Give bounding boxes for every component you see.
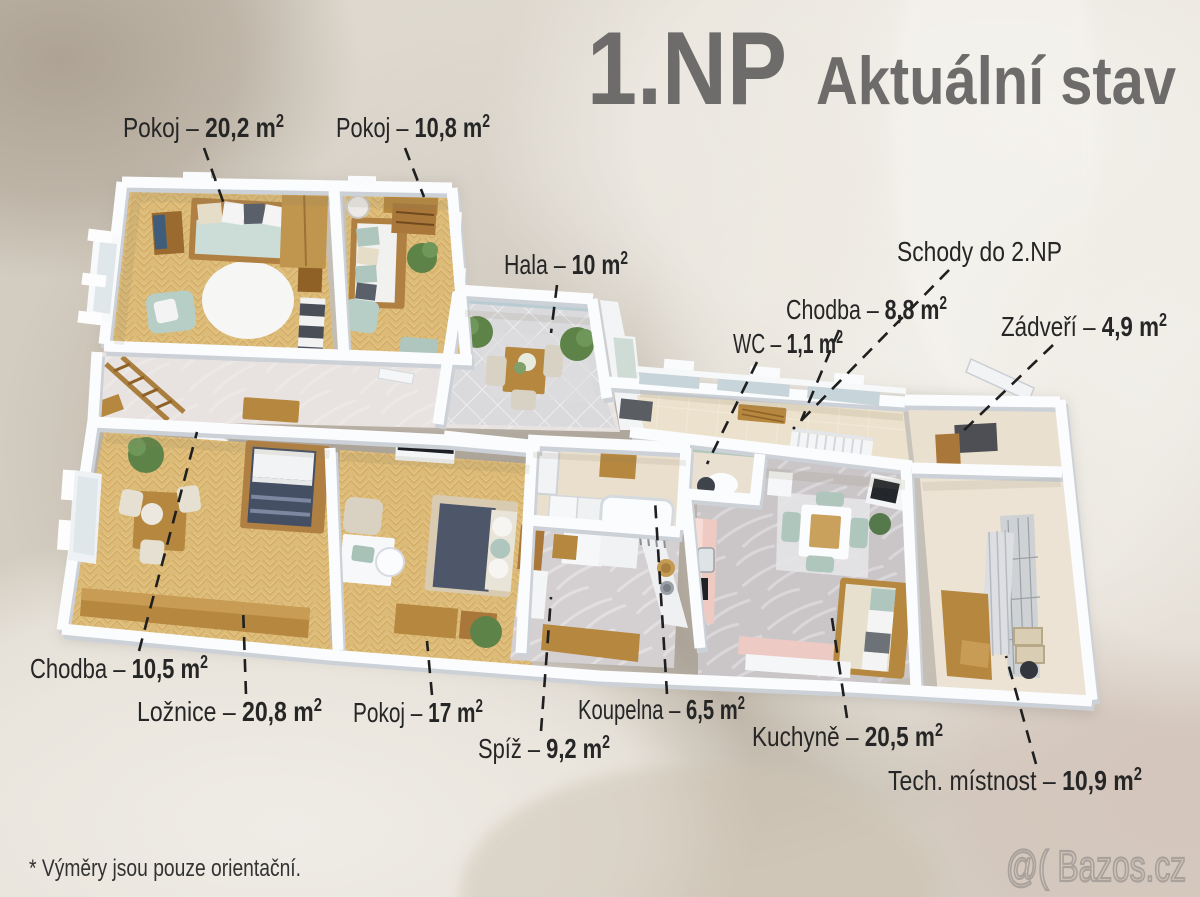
svg-text:Schody do 2.NP: Schody do 2.NP: [897, 236, 1062, 267]
svg-text:Chodba – 8,8 m2: Chodba – 8,8 m2: [786, 293, 947, 325]
svg-text:* Výměry jsou pouze orientační: * Výměry jsou pouze orientační.: [29, 855, 301, 882]
svg-text:Chodba – 10,5 m2: Chodba – 10,5 m2: [30, 652, 208, 684]
svg-text:Ložnice – 20,8 m2: Ložnice – 20,8 m2: [137, 695, 322, 727]
svg-text:@( Bazos.cz: @( Bazos.cz: [1006, 842, 1186, 891]
svg-text:Kuchyně – 20,5 m2: Kuchyně – 20,5 m2: [752, 720, 943, 752]
svg-text:Pokoj – 17 m2: Pokoj – 17 m2: [353, 696, 483, 728]
svg-text:WC – 1,1 m2: WC – 1,1 m2: [733, 327, 843, 359]
svg-text:Spíž – 9,2 m2: Spíž – 9,2 m2: [478, 732, 610, 764]
svg-text:Koupelna – 6,5 m2: Koupelna – 6,5 m2: [578, 693, 745, 725]
svg-text:Tech. místnost – 10,9 m2: Tech. místnost – 10,9 m2: [888, 764, 1142, 796]
svg-text:Zádveří – 4,9 m2: Zádveří – 4,9 m2: [1001, 310, 1167, 342]
svg-text:Pokoj – 10,8 m2: Pokoj – 10,8 m2: [336, 111, 490, 143]
svg-text:Pokoj – 20,2 m2: Pokoj – 20,2 m2: [123, 111, 284, 143]
svg-text:1.NP: 1.NP: [587, 11, 787, 127]
svg-text:Aktuální stav: Aktuální stav: [816, 43, 1176, 119]
svg-text:Hala – 10 m2: Hala – 10 m2: [504, 248, 628, 280]
